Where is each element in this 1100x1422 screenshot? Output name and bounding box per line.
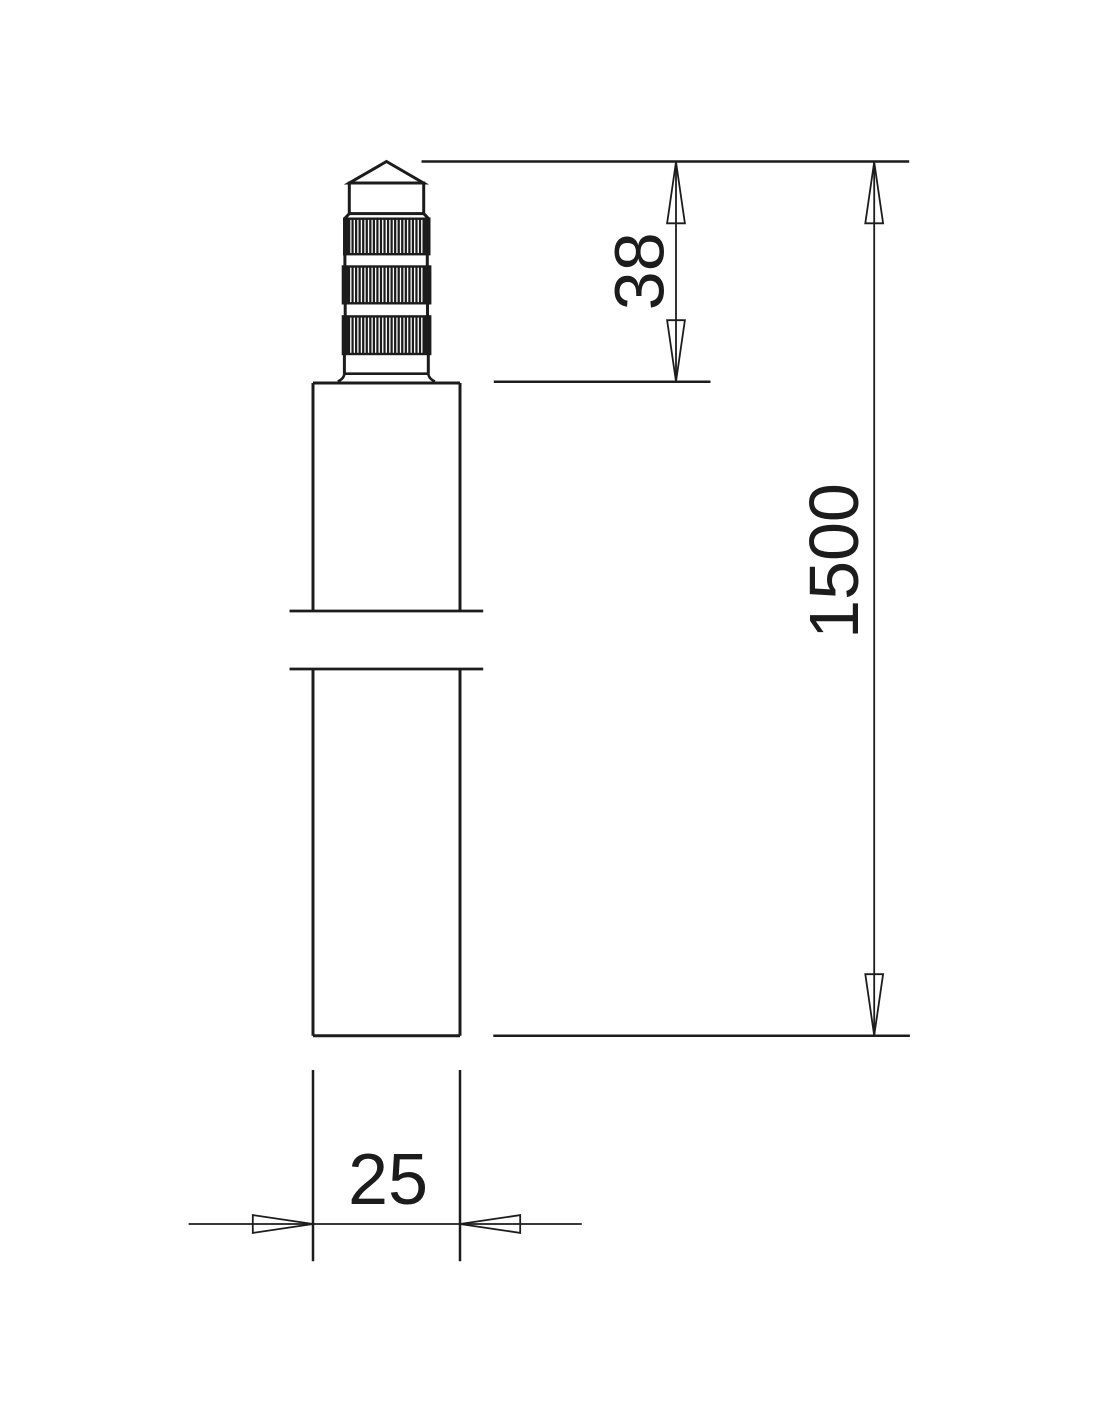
svg-text:25: 25 <box>348 1140 428 1220</box>
svg-text:1500: 1500 <box>795 483 873 639</box>
svg-text:38: 38 <box>601 232 679 310</box>
